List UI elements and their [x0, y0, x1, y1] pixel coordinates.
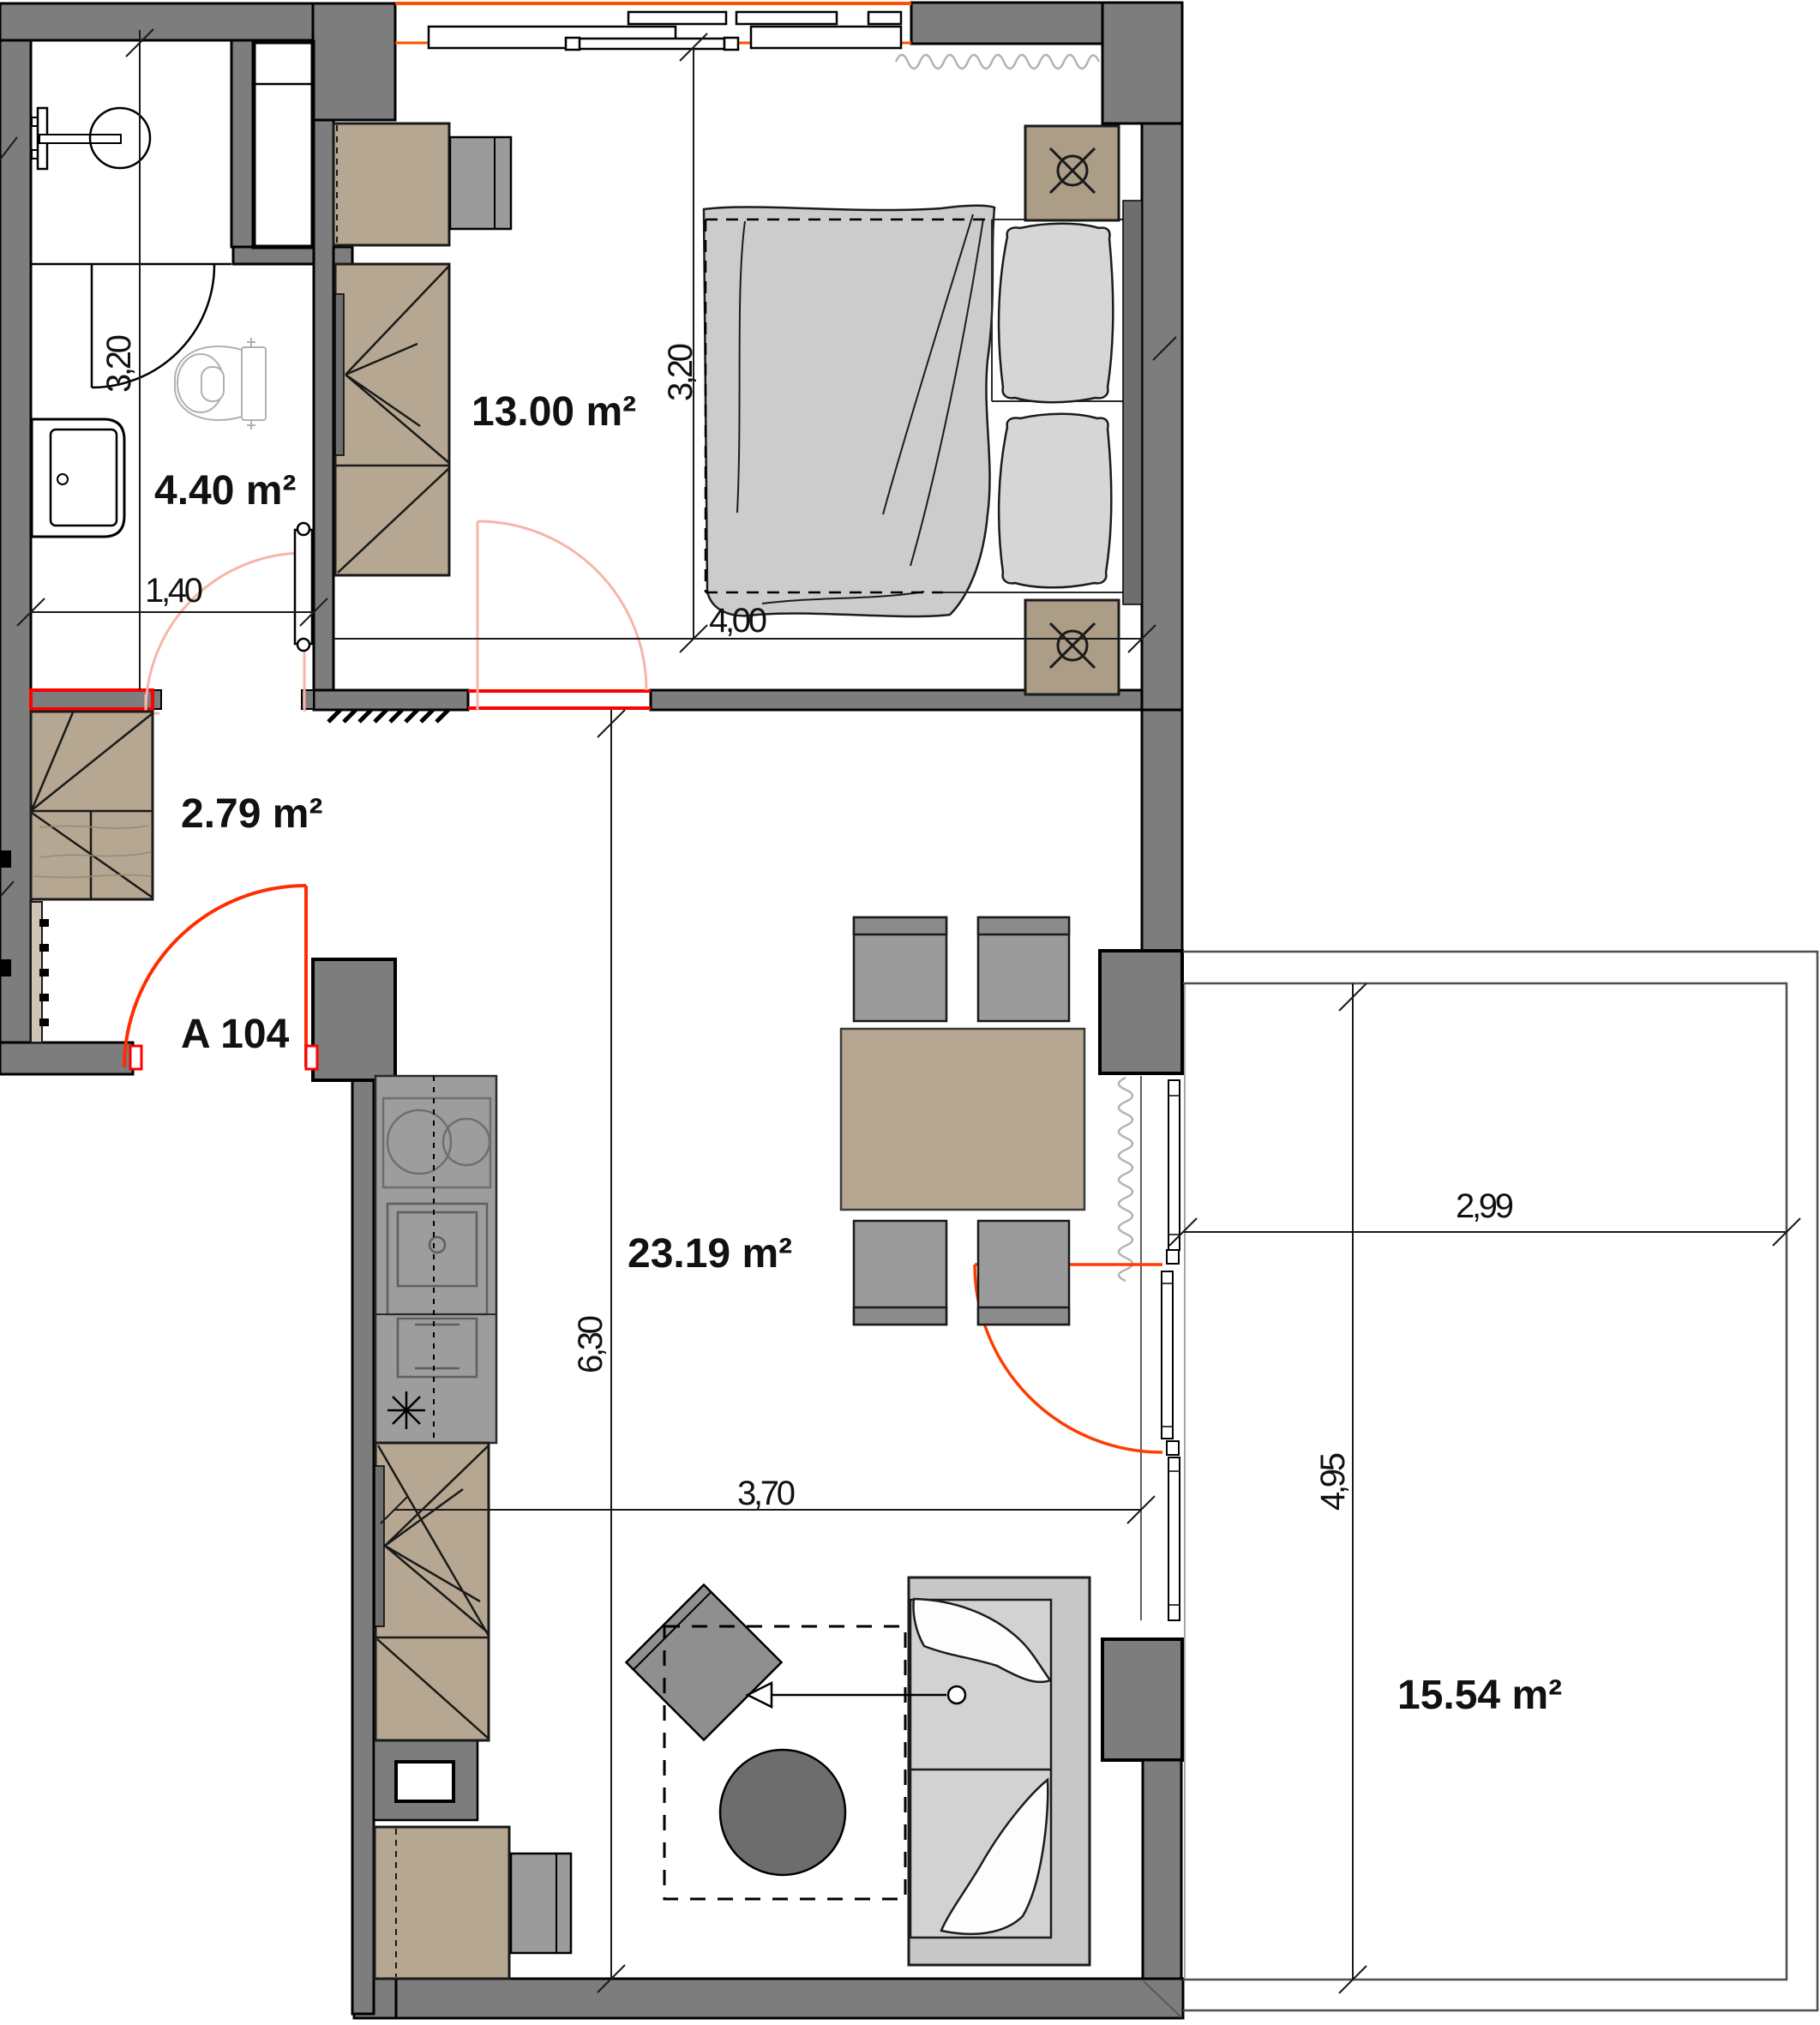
svg-text:4,95: 4,95 — [1314, 1452, 1352, 1511]
svg-text:2.79 m²: 2.79 m² — [181, 791, 322, 837]
svg-text:3,20: 3,20 — [662, 343, 700, 401]
svg-text:13.00 m²: 13.00 m² — [472, 389, 636, 435]
svg-text:6,30: 6,30 — [572, 1315, 610, 1373]
svg-text:23.19 m²: 23.19 m² — [628, 1231, 792, 1277]
svg-text:15.54 m²: 15.54 m² — [1397, 1673, 1562, 1718]
svg-text:1,40: 1,40 — [145, 572, 203, 610]
svg-text:4.40 m²: 4.40 m² — [154, 468, 296, 514]
svg-text:4,00: 4,00 — [709, 602, 767, 640]
svg-text:3,20: 3,20 — [100, 334, 138, 393]
svg-text:A 104: A 104 — [181, 1012, 290, 1057]
svg-text:3,70: 3,70 — [737, 1475, 796, 1512]
svg-text:2,99: 2,99 — [1456, 1187, 1514, 1225]
